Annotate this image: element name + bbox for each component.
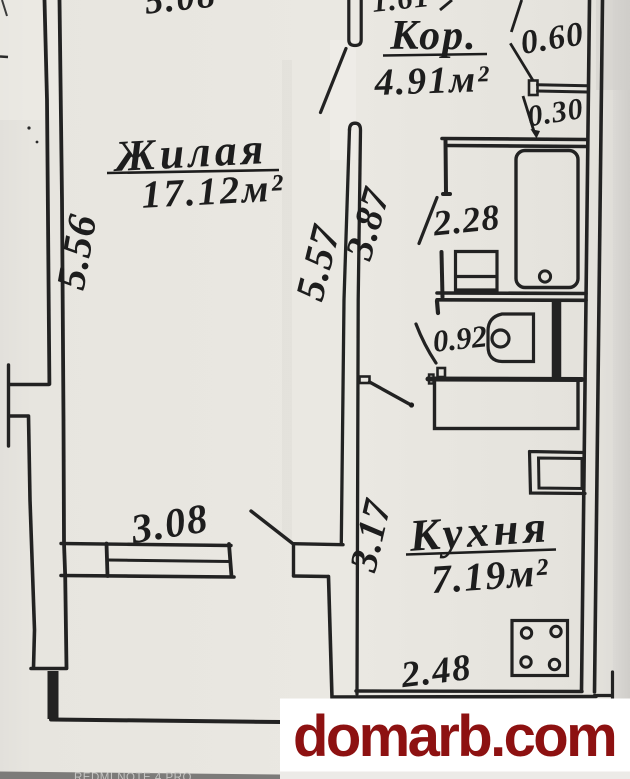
svg-text:2.28: 2.28 <box>430 197 502 244</box>
svg-text:domarb.com: domarb.com <box>293 704 615 769</box>
svg-text:17.12м²: 17.12м² <box>140 166 286 216</box>
svg-text:7.19м²: 7.19м² <box>429 549 550 602</box>
svg-text:REDMI NOTE 4 PRO: REDMI NOTE 4 PRO <box>74 772 192 779</box>
svg-text:Кор.: Кор. <box>389 13 477 59</box>
svg-text:4.91м²: 4.91м² <box>373 58 491 104</box>
svg-text:2.48: 2.48 <box>398 647 474 696</box>
svg-text:0.92: 0.92 <box>431 318 489 358</box>
